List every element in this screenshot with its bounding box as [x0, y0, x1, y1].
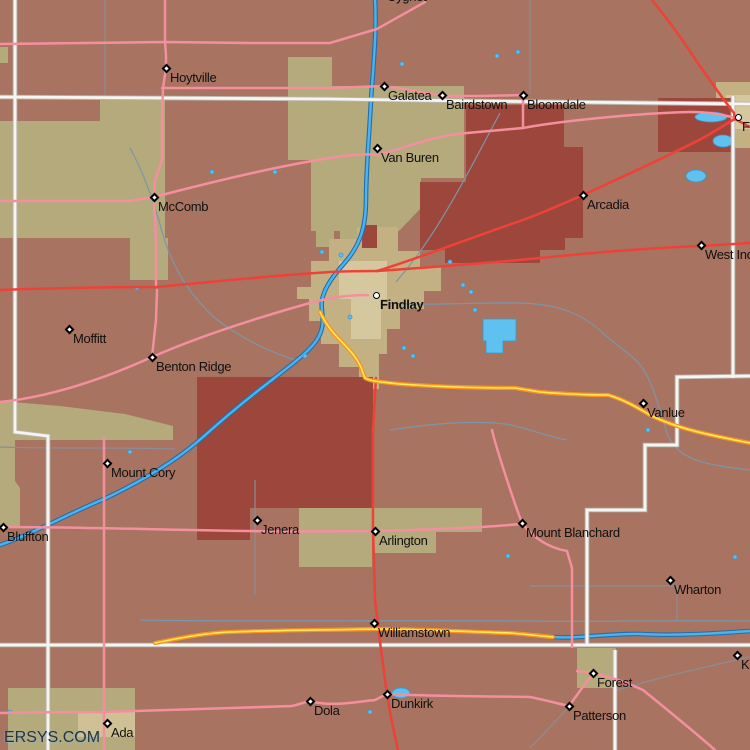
town-label: Cygnet [387, 0, 426, 4]
town-label: Ada [111, 726, 133, 740]
town-marker [735, 114, 742, 121]
town-label: Wharton [674, 583, 721, 597]
town-label: Galatea [388, 89, 431, 103]
town-label: Bluffton [7, 530, 48, 544]
town-label: Hoytville [170, 71, 216, 85]
town-label: Bloomdale [527, 98, 586, 112]
town-label: Kirby [741, 658, 750, 672]
town-label: Findlay [380, 298, 423, 312]
town-label: Mount Cory [111, 466, 175, 480]
town-label: West Independence [705, 248, 750, 262]
town-label: Benton Ridge [156, 360, 231, 374]
town-label: Vanlue [647, 406, 685, 420]
town-marker [373, 292, 380, 299]
town-label: Moffitt [73, 332, 106, 346]
town-label: Mount Blanchard [526, 526, 620, 540]
watermark: ERSYS.COM [4, 729, 100, 747]
map-canvas: CygnetHoytvilleGalateaBairdstownBloomdal… [0, 0, 750, 750]
town-label: Arlington [379, 534, 428, 548]
town-label: Fostoria [742, 120, 750, 134]
towns-layer: CygnetHoytvilleGalateaBairdstownBloomdal… [0, 0, 750, 750]
town-label: Van Buren [381, 151, 439, 165]
town-label: Dunkirk [391, 697, 433, 711]
town-label: Bairdstown [446, 98, 507, 112]
town-label: Arcadia [587, 198, 629, 212]
town-label: Williamstown [378, 626, 450, 640]
town-label: Dola [314, 704, 340, 718]
town-label: Patterson [573, 709, 626, 723]
town-label: McComb [158, 200, 208, 214]
town-label: Jenera [261, 523, 299, 537]
town-label: Forest [597, 676, 632, 690]
